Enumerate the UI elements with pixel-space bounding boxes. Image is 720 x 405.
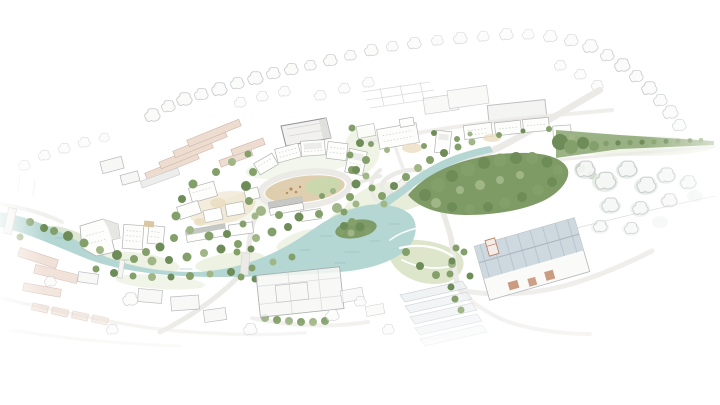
river-road-bridge: [240, 253, 250, 276]
masterplan-illustration: [0, 0, 720, 405]
